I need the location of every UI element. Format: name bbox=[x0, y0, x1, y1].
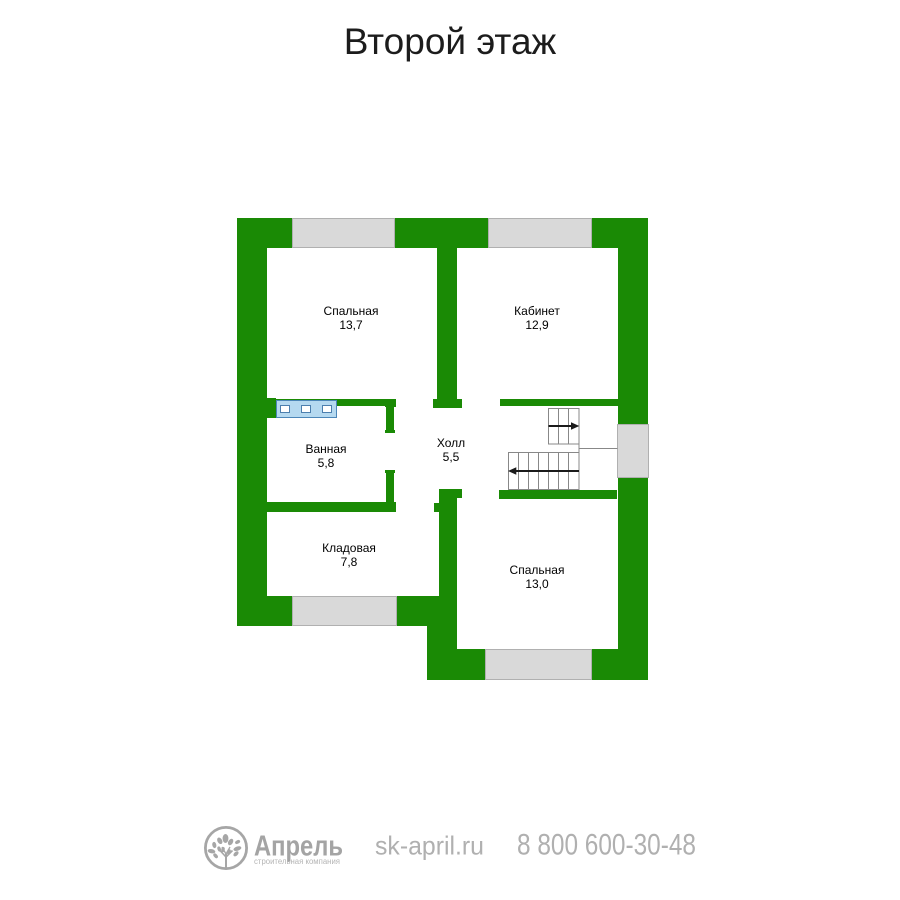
svg-text:8 800 600-30-48: 8 800 600-30-48 bbox=[517, 829, 696, 862]
svg-text:sk-april.ru: sk-april.ru bbox=[375, 831, 484, 861]
svg-text:строительная компания: строительная компания bbox=[254, 857, 340, 866]
